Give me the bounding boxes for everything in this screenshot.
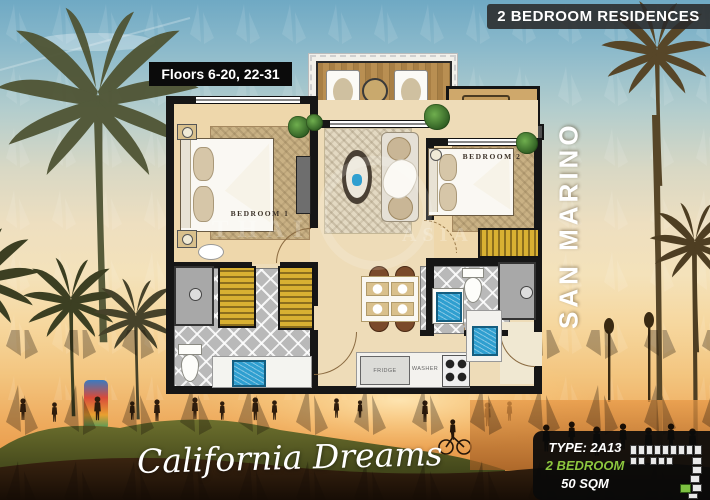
pillow — [439, 183, 457, 211]
key-plan — [630, 445, 708, 499]
key-plan-unit — [658, 457, 665, 465]
lamp-icon — [182, 127, 193, 138]
pillow — [193, 147, 214, 181]
key-plan-unit — [630, 457, 637, 465]
unit-area: 50 SQM — [537, 475, 633, 493]
wardrobe — [278, 266, 314, 330]
shower-head-icon — [520, 286, 533, 299]
kitchen-sink — [472, 326, 498, 356]
key-plan-unit — [692, 457, 702, 465]
wall — [420, 330, 434, 336]
entrance-opening — [534, 332, 542, 366]
residences-banner: 2 BEDROOM RESIDENCES — [487, 4, 710, 29]
key-plan-unit — [638, 457, 645, 465]
place-setting — [391, 282, 414, 296]
key-plan-unit — [638, 445, 645, 455]
plant — [516, 132, 538, 154]
watermark-circle — [318, 156, 432, 270]
key-plan-unit — [690, 475, 700, 483]
residences-banner-text: 2 BEDROOM RESIDENCES — [497, 8, 700, 25]
key-plan-unit — [688, 493, 698, 499]
key-plan-unit — [694, 445, 702, 455]
bedroom1-window — [196, 96, 300, 104]
nightstand — [177, 124, 197, 140]
place-setting — [366, 302, 389, 316]
key-plan-unit — [662, 445, 669, 455]
key-plan-unit — [686, 445, 693, 455]
key-plan-unit — [654, 445, 661, 455]
shower-head-icon — [189, 288, 202, 301]
dining-table — [361, 276, 419, 322]
plant — [424, 104, 450, 130]
unit-info-text: TYPE: 2A13 2 BEDROOM 50 SQM — [537, 439, 633, 493]
washer-label: WASHER — [408, 366, 442, 372]
lamp-icon — [430, 149, 442, 161]
bedroom2-label: BEDROOM 2 — [450, 152, 534, 161]
floors-label: Floors 6-20, 22-31 — [149, 62, 292, 86]
key-plan-unit — [692, 484, 702, 492]
plant — [306, 114, 323, 131]
fridge-label: FRIDGE — [373, 368, 396, 374]
key-plan-unit — [650, 457, 657, 465]
dresser — [296, 156, 311, 214]
fridge: FRIDGE — [360, 356, 410, 385]
key-plan-unit — [666, 457, 673, 465]
wardrobe — [218, 266, 256, 328]
poster-canvas: BEDROOM 1 — [0, 0, 710, 500]
unit-type: TYPE: 2A13 — [537, 439, 633, 457]
key-plan-unit — [646, 445, 653, 455]
place-setting — [366, 282, 389, 296]
shower-1 — [174, 266, 214, 326]
floors-label-text: Floors 6-20, 22-31 — [161, 66, 279, 82]
place-setting — [391, 302, 414, 316]
key-plan-unit — [692, 466, 702, 474]
tagline: California Dreams — [134, 434, 445, 497]
wall — [166, 96, 174, 394]
pouf — [198, 244, 224, 260]
key-plan-unit-highlight — [680, 484, 691, 493]
nightstand — [177, 230, 197, 248]
unit-info-box: TYPE: 2A13 2 BEDROOM 50 SQM — [533, 431, 710, 500]
lamp-icon — [182, 234, 193, 245]
building-name: SAN MARINO — [543, 108, 595, 343]
sink-2 — [436, 292, 462, 322]
unit-bedrooms: 2 BEDROOM — [537, 457, 633, 475]
key-plan-unit — [678, 445, 685, 455]
wardrobe — [478, 228, 540, 258]
balcony-sliding-door — [330, 120, 428, 128]
headboard — [181, 139, 191, 228]
key-plan-unit — [630, 445, 637, 455]
key-plan-unit — [670, 445, 677, 455]
shower-2 — [498, 262, 536, 320]
sink-1 — [232, 360, 266, 387]
